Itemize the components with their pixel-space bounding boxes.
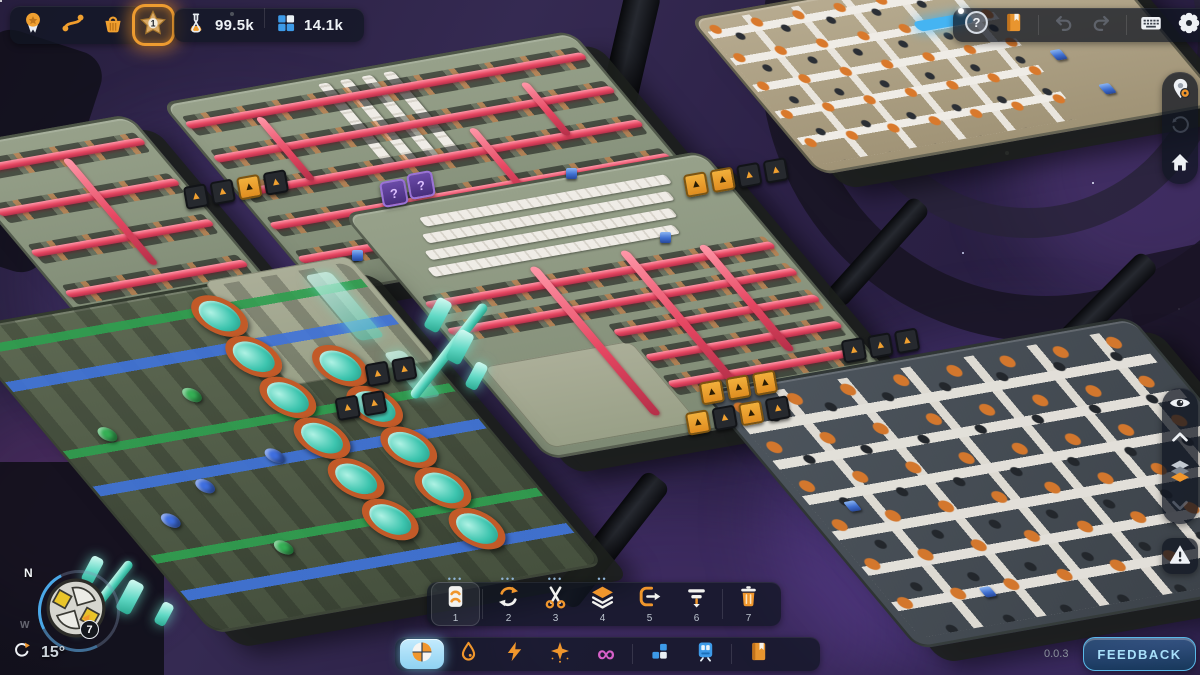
scene-decor — [1049, 49, 1068, 61]
scene-decor: 4 — [600, 613, 606, 624]
belt-tool-icon — [443, 584, 468, 614]
scene-decor: ▲ — [361, 390, 388, 417]
category-infinity[interactable]: ∞ — [584, 639, 628, 669]
scene-decor: ••• — [501, 574, 516, 584]
routes-button[interactable] — [54, 7, 91, 43]
scene-decor — [731, 644, 732, 664]
compass-count-badge: 7 — [80, 620, 99, 639]
help-button[interactable]: ? — [961, 10, 991, 40]
undo-icon — [1053, 12, 1075, 39]
warning-icon — [1168, 542, 1192, 571]
shop-button[interactable] — [95, 7, 132, 43]
scene-decor: ••• — [448, 574, 463, 584]
scissors-icon — [543, 584, 568, 614]
visibility-button[interactable] — [1168, 391, 1192, 420]
milestones-button[interactable]: 1 — [135, 7, 172, 43]
shortcuts-button[interactable] — [1136, 10, 1166, 40]
shapes-currency-icon — [275, 12, 297, 39]
sparkle-star-icon — [548, 640, 572, 669]
copy-tool-icon — [637, 584, 662, 614]
category-shapes[interactable] — [400, 639, 444, 669]
keyboard-icon — [1138, 10, 1164, 41]
scene-decor: ▲ — [894, 327, 921, 354]
scene-decor: ▲ — [209, 179, 236, 206]
waypoint-button[interactable] — [1169, 77, 1192, 105]
tool-cut[interactable]: ••• 3 — [532, 583, 579, 625]
scene-decor: ▲ — [738, 400, 765, 427]
top-left-toolbar: 1 — [10, 6, 176, 44]
scene-decor: 7 — [746, 613, 752, 624]
scene-decor: 5 — [647, 613, 653, 624]
blocks-icon — [648, 640, 671, 668]
scene-decor — [1126, 15, 1127, 35]
balancer-tool-icon — [684, 584, 709, 614]
scene-decor: ▲ — [711, 405, 738, 432]
knowledge-book-button[interactable] — [999, 10, 1029, 40]
help-icon: ? — [964, 10, 989, 40]
scene-decor — [722, 589, 723, 619]
scene-decor — [0, 0, 2, 2]
scene-decor — [566, 168, 577, 179]
scene-decor: ▲ — [263, 169, 290, 196]
layers-icon — [1168, 459, 1192, 488]
rotate-tool-icon — [496, 584, 521, 614]
research-flask-icon — [184, 11, 208, 40]
milestone-star-icon: 1 — [139, 9, 167, 42]
layer-down-button[interactable] — [1169, 494, 1191, 521]
redo-icon — [1090, 12, 1112, 39]
scene-decor — [264, 8, 265, 28]
hint-tile: ? — [406, 170, 436, 200]
scene-decor: ▲ — [709, 167, 736, 194]
book-icon — [1002, 11, 1025, 39]
home-icon — [1168, 150, 1192, 179]
scene-decor: 3 — [553, 613, 559, 624]
scene-decor — [1038, 15, 1039, 35]
rotation-icon — [12, 640, 32, 665]
rotation-indicator: 15° — [12, 640, 65, 665]
svg-text:1: 1 — [151, 18, 156, 28]
category-blocks[interactable] — [637, 639, 681, 669]
layer-indicator[interactable] — [1168, 459, 1192, 488]
layers-tool-icon — [590, 584, 615, 614]
scene-decor: 1 — [453, 613, 459, 624]
top-right-toolbar: ? — [953, 8, 1200, 42]
settings-button[interactable] — [1174, 10, 1200, 40]
eye-icon — [1168, 391, 1192, 420]
scene-decor: ▲ — [236, 174, 263, 201]
tool-copy[interactable]: 5 — [626, 583, 673, 625]
tool-rotate[interactable]: ••• 2 — [485, 583, 532, 625]
version-label: 0.0.3 — [1044, 648, 1068, 660]
achievements-button[interactable] — [14, 7, 51, 43]
layer-up-button[interactable] — [1169, 426, 1191, 453]
gear-icon — [1176, 10, 1200, 41]
scene-decor: ▲ — [183, 183, 210, 210]
basket-icon — [100, 10, 126, 41]
chevron-up-icon — [1169, 426, 1191, 453]
scene-decor: ▲ — [391, 356, 418, 383]
research-count: 99.5k — [215, 17, 254, 34]
scene-decor: ▲ — [685, 409, 712, 436]
tool-belt[interactable]: ••• 1 — [431, 582, 480, 626]
scene-decor: ▲ — [752, 369, 779, 396]
scene-decor: ? — [961, 8, 1200, 42]
scene-decor: 6 — [694, 613, 700, 624]
undo-button[interactable] — [1049, 10, 1079, 40]
game-viewport: ▲▲▲▲ ▲▲ ▲▲ ▲▲▲▲ ▲▲▲ ▲▲▲▲ ▲▲▲ ? ? .hint{l… — [0, 0, 1200, 675]
scene-decor: ▲ — [736, 162, 763, 189]
location-pin-icon — [1169, 77, 1192, 105]
feedback-button[interactable]: FEEDBACK — [1083, 637, 1196, 671]
scene-decor: ▲ — [699, 379, 726, 406]
scene-decor: ▲ — [841, 337, 868, 364]
category-energy[interactable] — [492, 639, 536, 669]
scene-decor: ▲ — [765, 395, 792, 422]
resources-panel: 99.5k 14.1k — [174, 8, 364, 42]
medal-icon — [20, 10, 46, 41]
infinity-icon: ∞ — [597, 642, 615, 667]
droplet-icon — [457, 640, 480, 668]
scene-decor: ▲ — [867, 332, 894, 359]
category-trains[interactable] — [683, 639, 727, 669]
alerts-button[interactable] — [1162, 538, 1198, 574]
history-button[interactable] — [1169, 114, 1191, 141]
tool-bar: ••• 1 ••• 2 ••• 3 •• 4 — [427, 582, 781, 626]
tool-delete[interactable]: 7 — [725, 583, 772, 625]
lightning-icon — [503, 640, 526, 668]
trash-icon — [736, 584, 761, 614]
category-bar: ∞ — [395, 637, 820, 671]
rotation-angle: 15° — [41, 644, 65, 662]
scene-decor: ••• — [548, 574, 563, 584]
history-icon — [1169, 114, 1191, 141]
layer-view-rail — [1162, 388, 1198, 524]
scene-decor — [1098, 83, 1117, 95]
home-button[interactable] — [1168, 150, 1192, 179]
scene-decor — [352, 250, 363, 261]
tool-layers[interactable]: •• 4 — [579, 583, 626, 625]
compass-west-label: W — [20, 620, 29, 631]
guide-book-icon — [747, 640, 770, 668]
hint-tile: ? — [379, 178, 409, 208]
svg-text:?: ? — [972, 15, 980, 30]
redo-button[interactable] — [1086, 10, 1116, 40]
scene-decor: •• — [597, 574, 607, 584]
scene-decor: ▲ — [364, 361, 391, 388]
route-icon — [60, 10, 86, 41]
scene-decor: ▲ — [725, 374, 752, 401]
train-icon — [694, 640, 717, 668]
scene-decor: ▲ — [334, 395, 361, 422]
scene-decor: 99.5k 14.1k — [184, 8, 354, 42]
category-effects[interactable] — [538, 639, 582, 669]
scene-decor: 1 — [14, 6, 172, 44]
shapes-count: 14.1k — [304, 17, 343, 34]
scene-decor — [482, 589, 483, 619]
scene-decor: ▲ — [683, 171, 710, 198]
category-guide[interactable] — [736, 639, 780, 669]
tool-balancer[interactable]: 6 — [673, 583, 720, 625]
shapes-quadrant-icon — [410, 640, 434, 669]
chevron-down-icon — [1169, 494, 1191, 521]
compass-north-label: N — [24, 566, 33, 580]
category-fluids[interactable] — [446, 639, 490, 669]
notification-dot — [958, 8, 964, 14]
scene-decor: ▲ — [763, 157, 790, 184]
navigation-rail — [1162, 72, 1198, 184]
scene-decor — [632, 644, 633, 664]
scene-decor — [660, 232, 671, 243]
scene-decor: 2 — [506, 613, 512, 624]
